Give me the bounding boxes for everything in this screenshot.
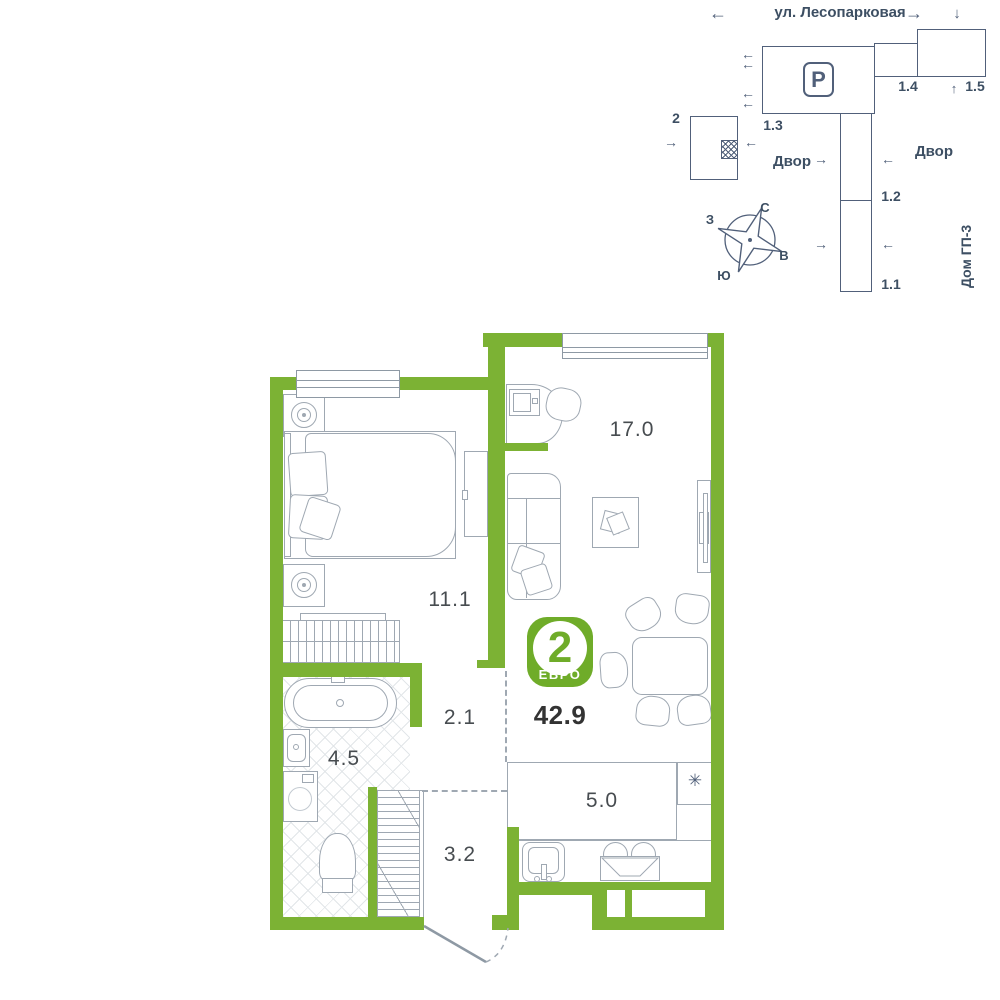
building-1-4 bbox=[874, 43, 918, 77]
label-building-1-5: 1.5 bbox=[960, 78, 990, 94]
building-1-5 bbox=[917, 29, 986, 77]
label-building-2: 2 bbox=[666, 110, 686, 126]
room-label-hall: 2.1 bbox=[430, 706, 490, 730]
entry-wardrobe-door bbox=[419, 790, 424, 918]
entry-wardrobe bbox=[377, 790, 421, 918]
living-window bbox=[562, 333, 708, 359]
house-gp3-label: Дом ГП-3 bbox=[958, 198, 980, 288]
compass-east-label: В bbox=[776, 248, 792, 263]
bathtub-drain bbox=[336, 699, 344, 707]
street-arrow-right: → bbox=[896, 4, 932, 22]
dining-chair bbox=[599, 651, 629, 689]
street-arrow-left: ← bbox=[700, 4, 736, 22]
building-1-1 bbox=[840, 200, 872, 292]
arrow-left-icon: ← bbox=[742, 135, 760, 149]
wall bbox=[519, 882, 592, 895]
wall bbox=[410, 663, 422, 727]
arrow-down-icon: ↓ bbox=[948, 6, 966, 21]
monitor-stand bbox=[532, 398, 538, 404]
bed-headboard bbox=[284, 433, 291, 557]
washer-drawer bbox=[302, 774, 314, 783]
room-label-bathroom: 4.5 bbox=[314, 747, 374, 771]
label-building-1-4: 1.4 bbox=[893, 78, 923, 94]
clothes-rack bbox=[281, 620, 400, 663]
apartment-type-badge: 2 ЕВРО bbox=[527, 617, 593, 687]
room-label-living: 17.0 bbox=[602, 418, 662, 442]
label-building-1-3: 1.3 bbox=[757, 117, 789, 133]
room-label-bedroom: 11.1 bbox=[420, 588, 480, 612]
label-building-1-1: 1.1 bbox=[876, 276, 906, 292]
wall bbox=[270, 663, 422, 677]
dining-chair bbox=[673, 592, 711, 626]
monitor-screen bbox=[513, 393, 531, 412]
bathtub-faucet bbox=[331, 676, 345, 683]
arrow-left-icon: ← bbox=[879, 237, 897, 251]
arrow-up-icon: ↑ bbox=[946, 82, 962, 95]
zone-boundary bbox=[505, 671, 507, 762]
arrow-right-icon: → bbox=[812, 152, 830, 166]
building-1-2 bbox=[840, 113, 872, 201]
dining-chair bbox=[622, 593, 667, 636]
parking-icon: P bbox=[803, 62, 834, 97]
dining-chair bbox=[675, 693, 713, 727]
arrow-left-icon: ← bbox=[740, 96, 756, 110]
toilet bbox=[319, 833, 356, 883]
dining-chair bbox=[635, 694, 672, 727]
tv-screen bbox=[703, 493, 708, 563]
wall bbox=[505, 443, 548, 451]
compass-south-label: Ю bbox=[716, 268, 732, 283]
washer-door bbox=[288, 787, 312, 811]
bedroom-window bbox=[296, 370, 400, 398]
wall bbox=[488, 333, 505, 668]
compass-west-label: З bbox=[702, 212, 718, 227]
sink-drain bbox=[293, 744, 299, 750]
euro-label: ЕВРО bbox=[527, 667, 593, 682]
building-2-section bbox=[721, 140, 738, 159]
arrow-right-icon: → bbox=[812, 237, 830, 251]
zone-boundary bbox=[422, 790, 507, 792]
arrow-left-icon: ← bbox=[740, 57, 756, 71]
courtyard-label-right: Двор bbox=[905, 143, 963, 160]
wall bbox=[270, 917, 424, 930]
fridge-symbol: ✳ bbox=[684, 770, 706, 792]
compass-north-label: С bbox=[757, 200, 773, 215]
wall bbox=[705, 890, 724, 917]
sofa-line bbox=[508, 498, 560, 499]
arrow-left-icon: ← bbox=[879, 152, 897, 166]
entry-door bbox=[405, 910, 525, 982]
room-label-entry: 3.2 bbox=[430, 843, 490, 867]
wall bbox=[477, 660, 505, 668]
wall bbox=[711, 333, 724, 930]
toilet-tank bbox=[322, 878, 353, 893]
lamp-dot bbox=[302, 583, 306, 587]
room-label-kitchen: 5.0 bbox=[572, 789, 632, 813]
bed-pillow bbox=[288, 451, 329, 498]
rooms-count: 2 bbox=[548, 626, 572, 670]
wall bbox=[593, 882, 717, 890]
hood-lines bbox=[600, 856, 660, 881]
sofa-line bbox=[508, 543, 560, 544]
wall bbox=[368, 787, 377, 930]
dining-table bbox=[632, 637, 708, 695]
wall bbox=[625, 890, 632, 917]
wall bbox=[270, 377, 283, 930]
dresser-handle bbox=[462, 490, 468, 500]
floorplan-page: ← ул. Лесопарковая → ↓ P 2 1.3 1.4 1.5 1… bbox=[0, 0, 1000, 1000]
lamp-dot bbox=[302, 413, 306, 417]
counter-edge bbox=[519, 840, 711, 841]
wall bbox=[592, 917, 724, 930]
arrow-right-icon: → bbox=[662, 135, 680, 149]
total-area: 42.9 bbox=[524, 700, 596, 731]
label-building-1-2: 1.2 bbox=[876, 188, 906, 204]
